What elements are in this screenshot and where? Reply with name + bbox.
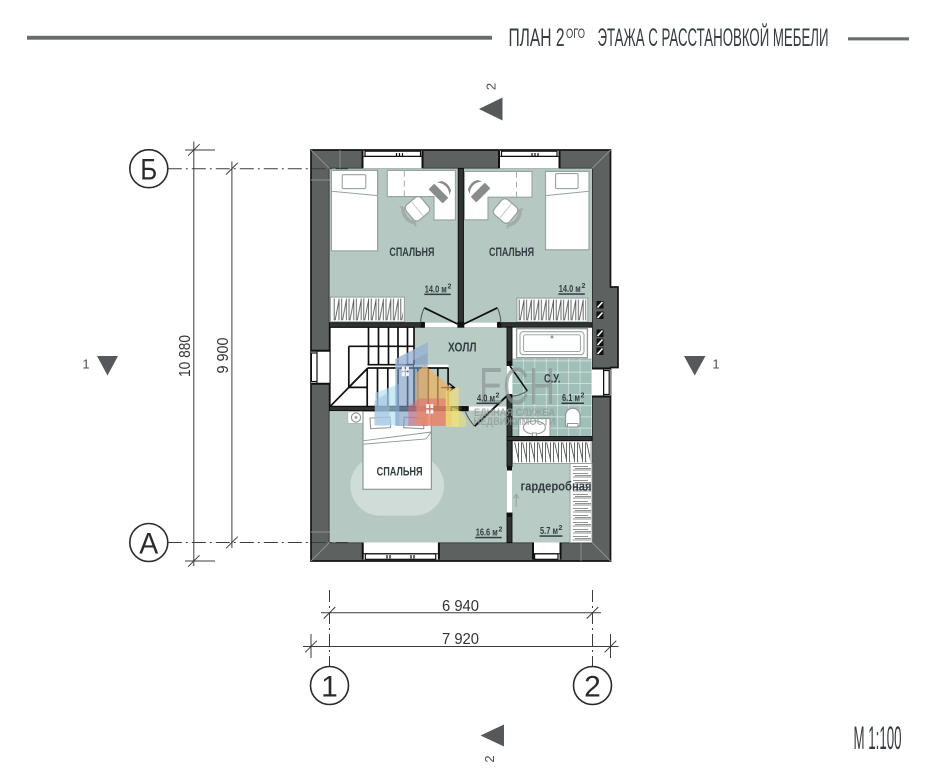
svg-text:4.0 м: 4.0 м (477, 392, 495, 404)
svg-text:1: 1 (712, 357, 719, 372)
svg-text:С.У.: С.У. (544, 372, 561, 386)
svg-text:СПАЛЬНЯ: СПАЛЬНЯ (489, 247, 534, 259)
svg-text:ОГО: ОГО (566, 25, 585, 41)
svg-text:1: 1 (82, 357, 89, 372)
svg-text:2: 2 (559, 525, 563, 532)
svg-text:2: 2 (448, 284, 452, 291)
svg-text:5.7 м: 5.7 м (540, 525, 558, 537)
svg-text:2: 2 (581, 392, 585, 399)
svg-text:7 920: 7 920 (442, 631, 479, 648)
svg-text:гардеробная: гардеробная (521, 479, 592, 494)
svg-text:ПЛАН 2: ПЛАН 2 (509, 24, 565, 52)
svg-text:14.0 м: 14.0 м (425, 283, 447, 295)
svg-text:9 900: 9 900 (215, 337, 232, 373)
svg-text:2: 2 (499, 527, 503, 534)
svg-text:10 880: 10 880 (177, 335, 194, 377)
svg-text:СПАЛЬНЯ: СПАЛЬНЯ (389, 247, 434, 259)
svg-text:А: А (139, 527, 158, 560)
svg-text:ХОЛЛ: ХОЛЛ (448, 339, 477, 354)
svg-text:М 1:100: М 1:100 (854, 720, 902, 756)
svg-text:2: 2 (584, 670, 601, 703)
svg-text:Б: Б (140, 154, 157, 187)
svg-text:2: 2 (496, 393, 500, 400)
svg-text:16.6 м: 16.6 м (476, 527, 498, 539)
svg-text:СПАЛЬНЯ: СПАЛЬНЯ (377, 466, 423, 478)
svg-text:2: 2 (482, 755, 497, 762)
svg-text:6.1 м: 6.1 м (562, 392, 580, 404)
svg-text:НЕДВИЖИМОСТИ: НЕДВИЖИМОСТИ (474, 416, 556, 428)
svg-text:6 940: 6 940 (442, 598, 479, 615)
svg-text:2: 2 (582, 283, 586, 290)
svg-text:1: 1 (321, 670, 338, 703)
svg-text:2: 2 (484, 83, 499, 90)
svg-text:14.0 м: 14.0 м (559, 283, 581, 295)
svg-text:ЭТАЖА С РАССТАНОВКОЙ МЕБЕЛИ: ЭТАЖА С РАССТАНОВКОЙ МЕБЕЛИ (598, 22, 829, 52)
